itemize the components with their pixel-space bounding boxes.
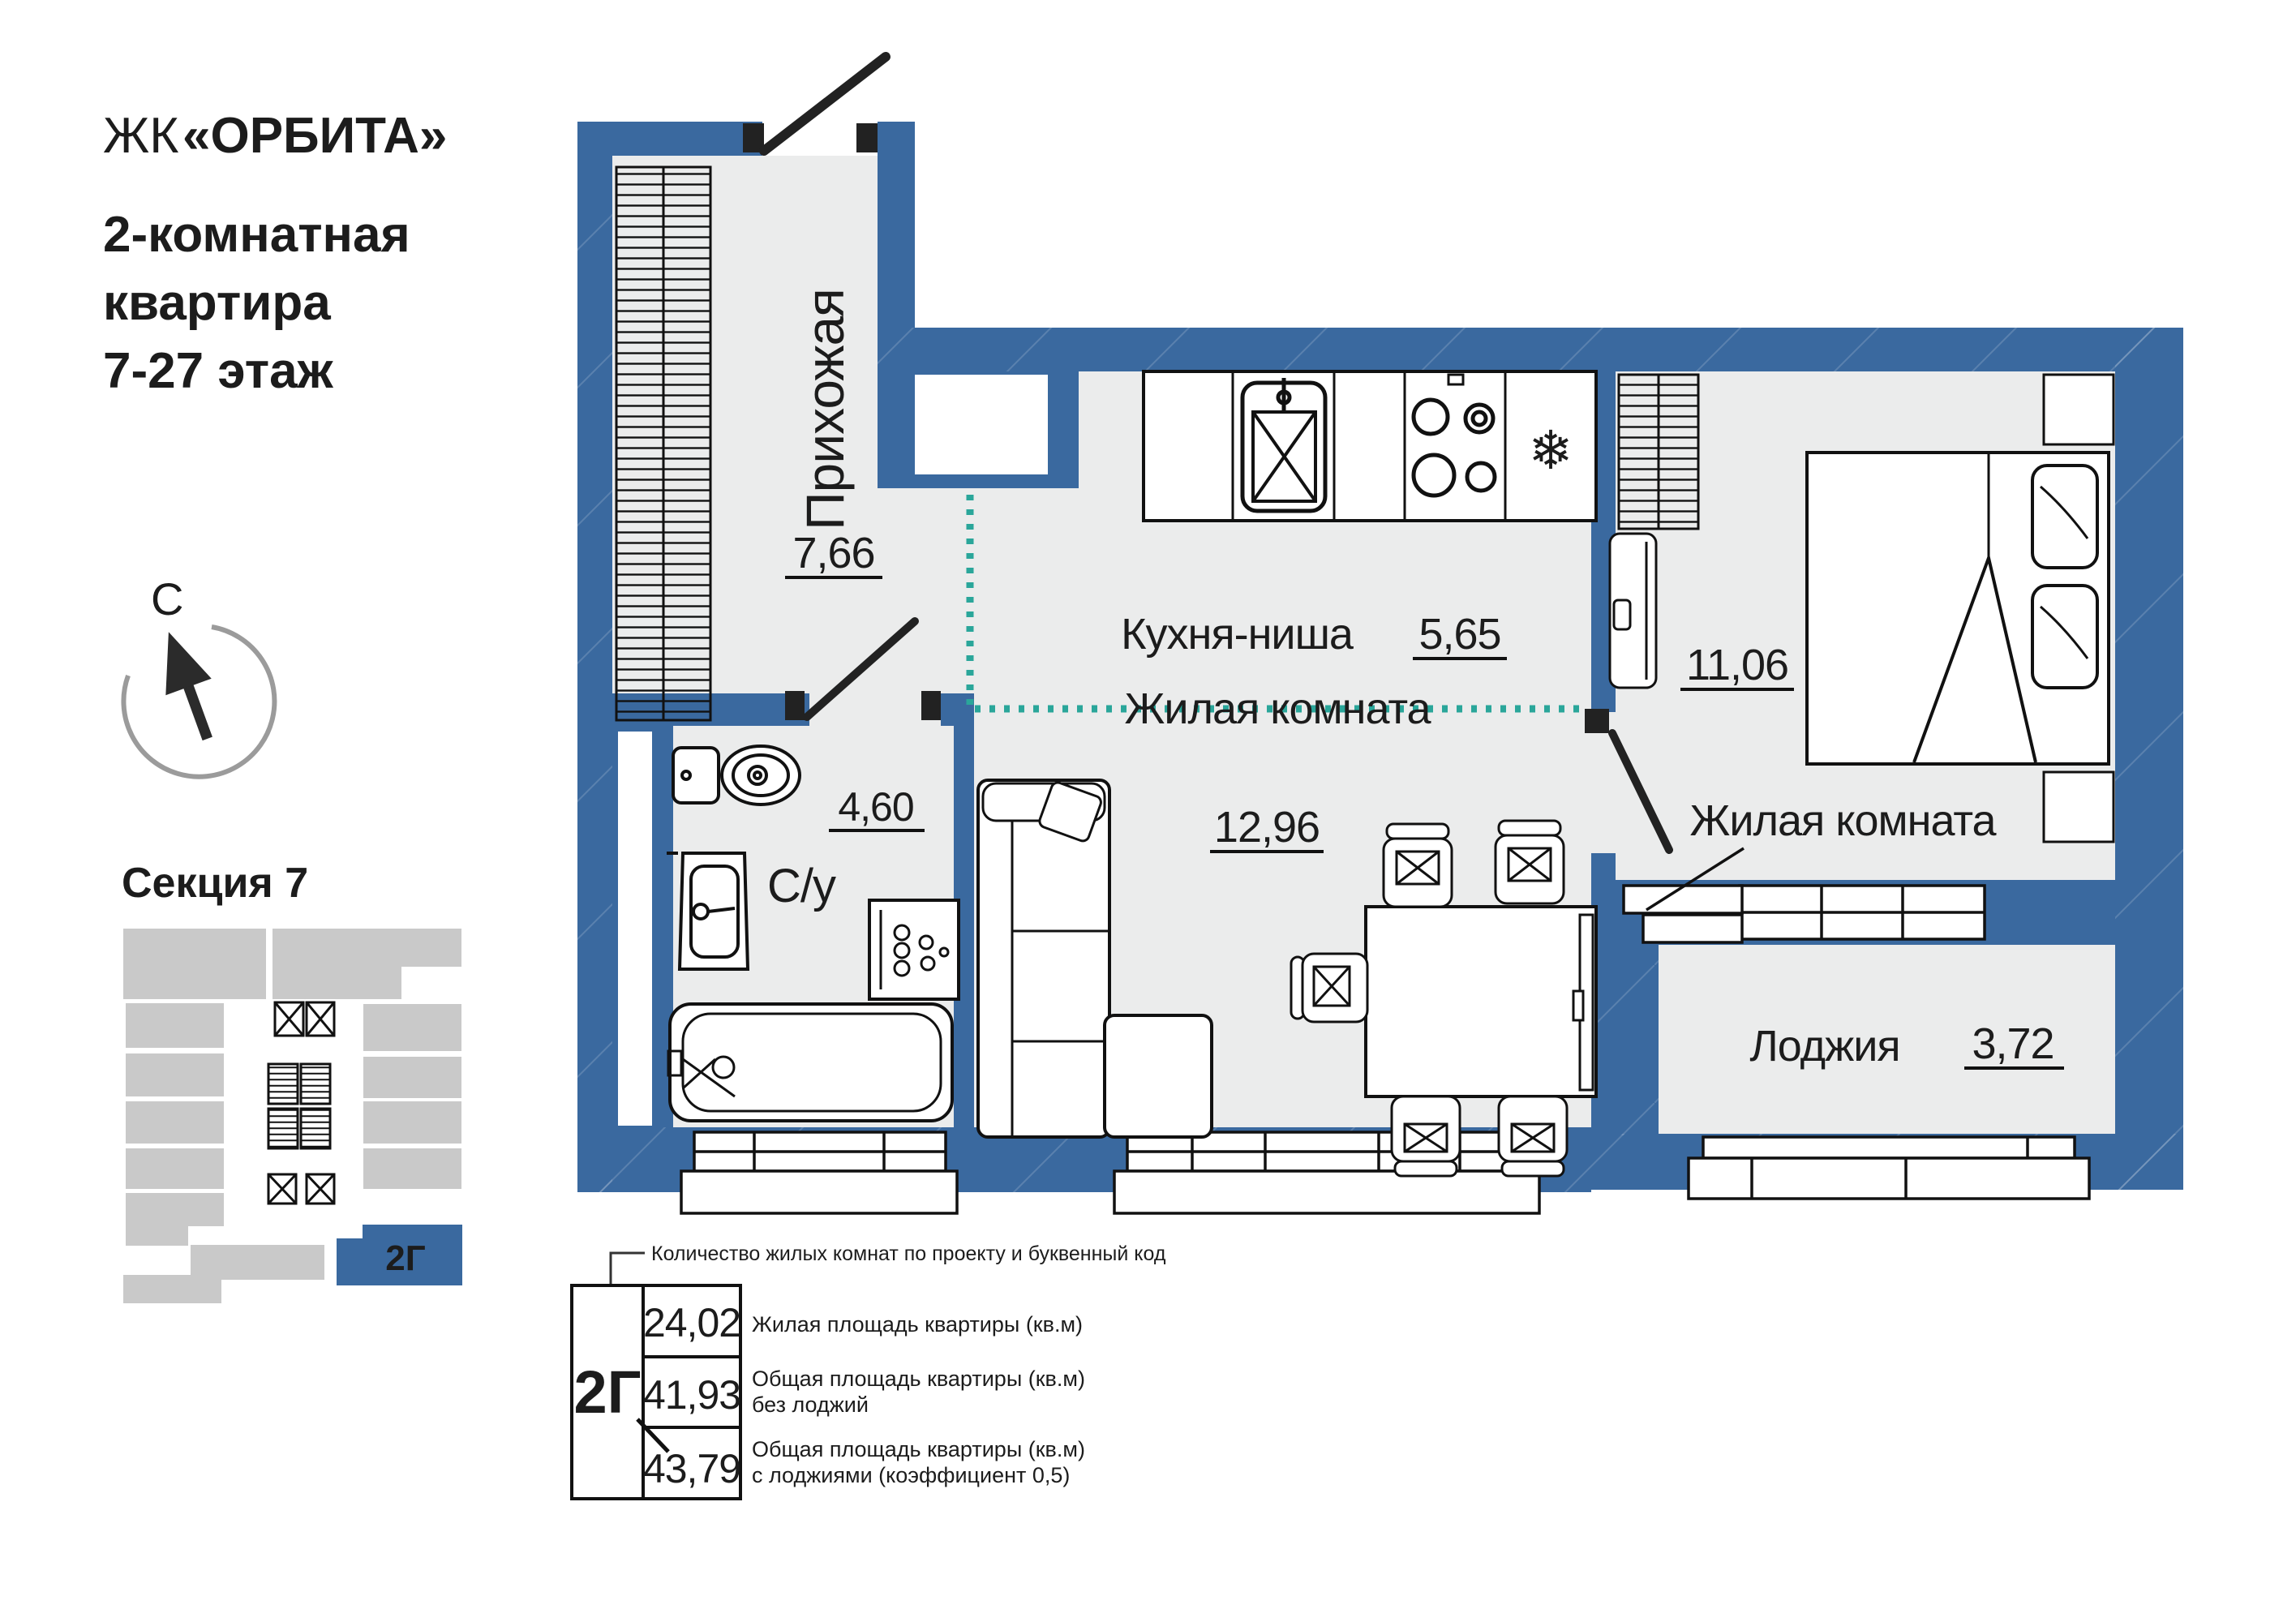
legend-row-labels: Жилая площадь квартиры (кв.м) Общая площ…	[752, 1312, 1085, 1487]
room-label-hallway: Прихожая	[795, 289, 855, 530]
legend-value-total-with-loggia: 43,79	[643, 1446, 740, 1491]
room-area-bathroom: 4,60	[838, 784, 913, 830]
entrance-door	[743, 57, 886, 152]
subtitle-line-2: квартира	[103, 275, 331, 331]
legend: Количество жилых комнат по проекту и бук…	[572, 1242, 1166, 1499]
kitchen-counter: ❄	[1144, 371, 1596, 521]
bedroom-door-leaf	[1610, 534, 1656, 688]
legend-callout: Количество жилых комнат по проекту и бук…	[651, 1242, 1166, 1265]
room-label-bedroom: Жилая комната	[1689, 796, 1997, 845]
legend-callout-line	[611, 1253, 645, 1285]
room-area-loggia: 3,72	[1972, 1019, 2054, 1068]
bathroom-window	[681, 1132, 957, 1213]
room-area-bedroom: 11,06	[1686, 641, 1788, 689]
bathtub-icon	[668, 1004, 952, 1121]
wardrobe-hallway	[616, 167, 710, 720]
living-window	[1114, 1132, 1539, 1213]
legend-label-total-with-loggia: Общая площадь квартиры (кв.м)	[752, 1437, 1085, 1461]
section-title: Секция 7	[122, 860, 308, 907]
room-label-kitchen: Кухня-ниша	[1121, 610, 1354, 659]
floor-plan: ❄	[577, 57, 2183, 1213]
legend-label-total-area-2: без лоджий	[752, 1392, 869, 1417]
room-area-kitchen: 5,65	[1418, 610, 1500, 659]
north-label: С	[151, 573, 183, 624]
minimap-unit-code: 2Г	[385, 1238, 425, 1278]
apartment-subtitle: 2-комнатная квартира 7-27 этаж	[103, 207, 410, 399]
bed	[1807, 453, 2109, 764]
legend-unit-code: 2Г	[573, 1358, 641, 1426]
section-minimap: 2Г	[123, 929, 462, 1303]
wall-cavity	[618, 732, 652, 1126]
bedroom-loggia-window	[1740, 886, 1985, 939]
complex-prefix: ЖК	[103, 108, 178, 164]
legend-label-total-with-loggia-2: с лоджиями (коэффициент 0,5)	[752, 1463, 1070, 1487]
legend-value-living-area: 24,02	[643, 1300, 740, 1345]
minimap-unit-highlight: 2Г	[337, 1225, 462, 1285]
dining-table	[1366, 907, 1596, 1096]
legend-label-living-area: Жилая площадь квартиры (кв.м)	[752, 1312, 1083, 1337]
legend-values: 24,02 41,93 43,79	[643, 1300, 740, 1491]
loggia-window	[1689, 1137, 2089, 1199]
subtitle-line-1: 2-комнатная	[103, 207, 410, 263]
room-area-living: 12,96	[1214, 803, 1320, 852]
toilet-icon	[673, 746, 800, 805]
compass-arrow	[146, 624, 230, 747]
legend-value-total-area: 41,93	[643, 1372, 740, 1418]
wardrobe-bedroom	[1619, 375, 1698, 529]
minimap-stairs-icons	[268, 1064, 330, 1148]
room-label-living: Жилая комната	[1124, 684, 1431, 733]
room-area-hallway: 7,66	[792, 529, 874, 577]
apartment-plan-sheet: ЖК «ОРБИТА» 2-комнатная квартира 7-27 эт…	[0, 0, 2296, 1622]
washing-machine-icon	[869, 900, 959, 999]
fridge-snowflake-icon: ❄	[1528, 420, 1573, 480]
complex-name: «ОРБИТА»	[182, 108, 447, 164]
header-title: ЖК «ОРБИТА»	[103, 108, 447, 164]
room-label-bathroom: С/у	[767, 860, 836, 912]
room-label-loggia: Лоджия	[1749, 1022, 1899, 1071]
vent-niche	[915, 375, 1048, 474]
north-arrow-icon: С	[123, 573, 274, 777]
legend-label-total-area: Общая площадь квартиры (кв.м)	[752, 1367, 1085, 1391]
subtitle-line-3: 7-27 этаж	[103, 343, 334, 399]
